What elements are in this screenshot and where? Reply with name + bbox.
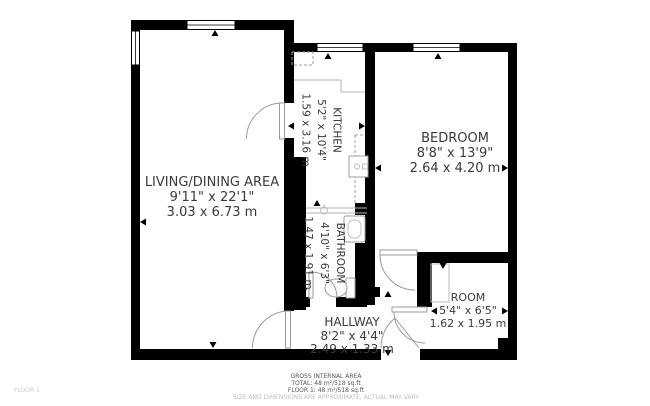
floor-plan-canvas: LIVING/DINING AREA 9'11" x 22'1" 3.03 x … [0,0,650,406]
door-living-hallway [253,311,291,348]
room-labels: LIVING/DINING AREA 9'11" x 22'1" 3.03 x … [145,93,507,356]
bathroom-sink-icon [344,216,365,242]
kitchen-sink-icon [349,156,368,177]
door-room [392,307,427,343]
label-kitchen: KITCHEN 5'2" x 10'4" 1.59 x 3.16 m [300,93,343,166]
bedroom-imperial: 8'8" x 13'9" [417,146,493,161]
footer: GROSS INTERNAL AREA TOTAL: 48 m²/518 sq.… [14,373,419,401]
floor-number-label: FLOOR 1 [14,387,40,394]
hallway-metric: 2.49 x 1.33 m [310,342,394,356]
bathroom-imperial: 4'10" x 6'3" [318,222,330,284]
fridge-icon [292,52,313,65]
room-name: ROOM [451,291,485,304]
kitchen-metric: 1.59 x 3.16 m [300,93,312,166]
footer-title: GROSS INTERNAL AREA [291,373,363,380]
hallway-name: HALLWAY [324,315,380,329]
window-icon [187,21,235,30]
kitchen-zone-line [294,80,365,92]
living-room-metric: 3.03 x 6.73 m [167,205,258,220]
window-icon [413,44,460,52]
living-room-imperial: 9'11" x 22'1" [170,190,255,205]
footer-floor: FLOOR 1: 48 m²/518 sq.ft [288,387,365,394]
footer-disclaimer: SIZE AND DIMENSIONS ARE APPROXIMATE, ACT… [233,394,419,401]
label-bedroom: BEDROOM 8'8" x 13'9" 2.64 x 4.20 m [410,131,501,176]
hallway-imperial: 8'2" x 4'4" [321,329,384,343]
room-imperial: 5'4" x 6'5" [439,304,497,317]
label-hallway: HALLWAY 8'2" x 4'4" 2.49 x 1.33 m [310,315,394,356]
footer-total: TOTAL: 48 m²/518 sq.ft [290,380,361,387]
floor-plan-page: LIVING/DINING AREA 9'11" x 22'1" 3.03 x … [0,0,650,406]
bathroom-metric: 1.47 x 1.91 m [302,216,314,289]
label-bathroom: BATHROOM 4'10" x 6'3" 1.47 x 1.91 m [302,216,346,289]
bedroom-metric: 2.64 x 4.20 m [410,161,501,176]
kitchen-imperial: 5'2" x 10'4" [315,99,327,161]
door-bedroom [380,250,417,290]
bedroom-name: BEDROOM [421,131,489,146]
kitchen-name: KITCHEN [331,107,343,153]
living-room-name: LIVING/DINING AREA [145,175,279,190]
label-room: ROOM 5'4" x 6'5" 1.62 x 1.95 m [430,291,507,330]
door-living-kitchen [247,103,285,139]
window-icon [132,31,140,65]
window-icon [317,44,363,52]
wardrobe-icon [431,264,449,302]
bathroom-name: BATHROOM [334,223,346,284]
room-metric: 1.62 x 1.95 m [430,317,507,330]
label-living-dining: LIVING/DINING AREA 9'11" x 22'1" 3.03 x … [145,175,279,220]
